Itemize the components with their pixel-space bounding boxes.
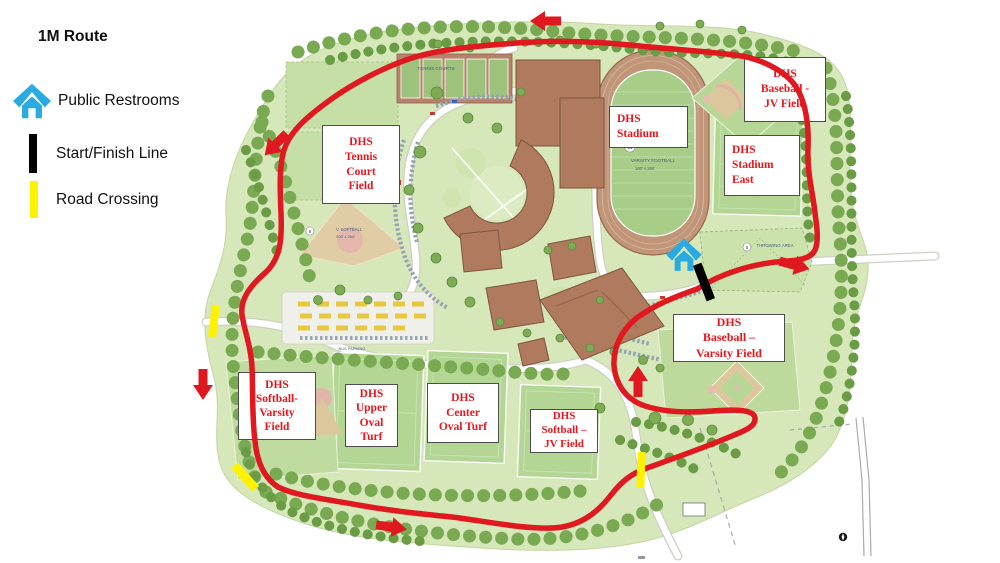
legend-item-label: Start/Finish Line	[56, 145, 168, 163]
route-arrow-up	[628, 366, 648, 397]
road-crossing-bar-icon	[30, 181, 38, 218]
road-crossing-marker	[636, 452, 645, 488]
legend-item-road-crossing: Road Crossing	[30, 181, 159, 218]
route-path	[242, 41, 818, 528]
legend-title: 1M Route	[38, 28, 108, 46]
road-crossing-marker	[231, 462, 259, 492]
start-finish-bar-icon	[29, 134, 37, 173]
route-arrow-right-bottom	[375, 515, 408, 539]
compass-icon	[839, 533, 847, 541]
route-arrow-left	[530, 11, 561, 31]
route-arrow-down	[193, 369, 213, 400]
legend-item-label: Public Restrooms	[58, 92, 179, 110]
restroom-house-icon	[12, 82, 52, 120]
legend-item-start-finish: Start/Finish Line	[29, 134, 168, 173]
legend: 1M Route Public Restrooms Start/Finish L…	[0, 0, 210, 230]
road-crossing-marker	[208, 305, 220, 338]
legend-item-public-restrooms: Public Restrooms	[12, 82, 179, 120]
legend-item-label: Road Crossing	[56, 191, 159, 209]
campus-route-map-page: TENNIS COURTS 6 V. SOFTBALL 200' x 200' …	[0, 0, 1000, 563]
